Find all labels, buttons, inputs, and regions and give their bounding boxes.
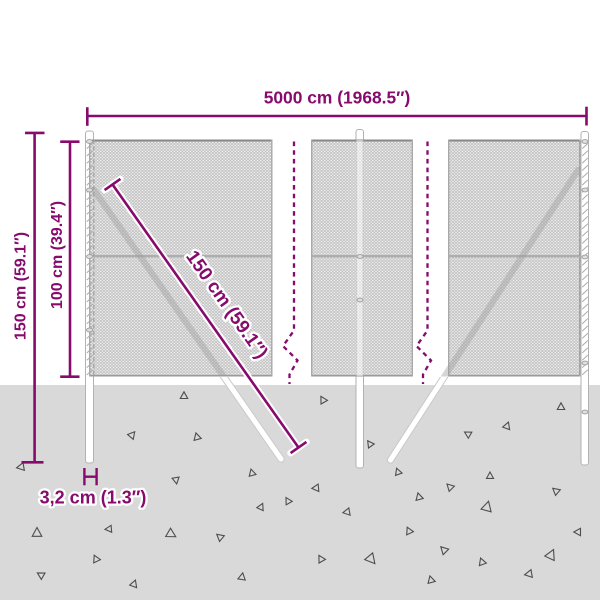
svg-text:5000 cm (1968.5″): 5000 cm (1968.5″): [264, 88, 411, 108]
svg-text:3,2 cm (1.3″): 3,2 cm (1.3″): [40, 488, 147, 508]
svg-text:150 cm (59.1″): 150 cm (59.1″): [13, 232, 30, 340]
svg-text:100 cm (39.4″): 100 cm (39.4″): [49, 201, 66, 309]
